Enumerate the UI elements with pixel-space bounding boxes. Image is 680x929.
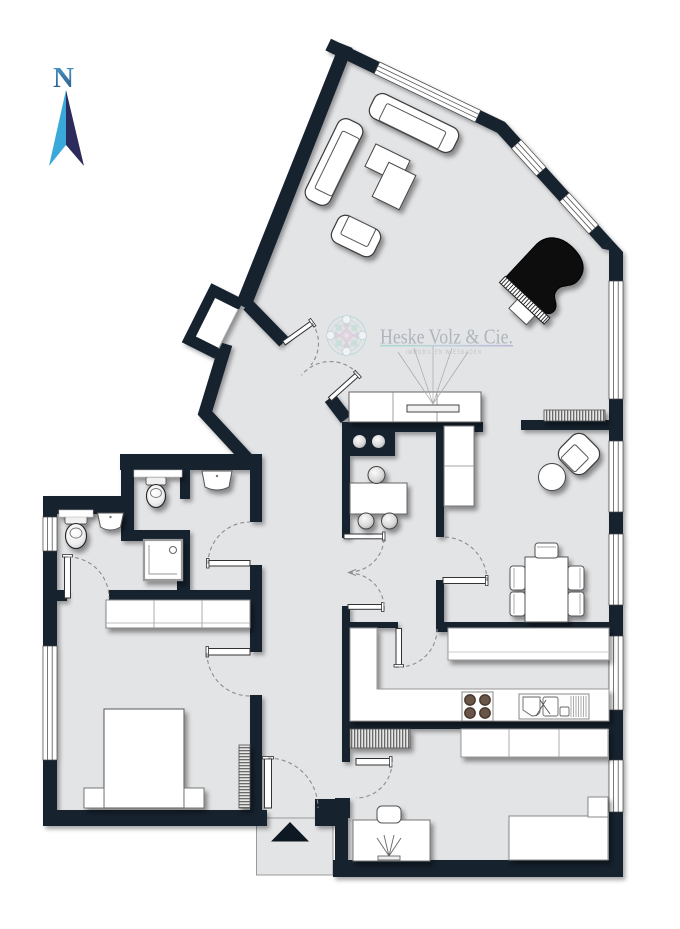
svg-text:N: N [53, 62, 74, 94]
svg-text:IMMOBILIEN WIESBADEN: IMMOBILIEN WIESBADEN [406, 349, 482, 356]
